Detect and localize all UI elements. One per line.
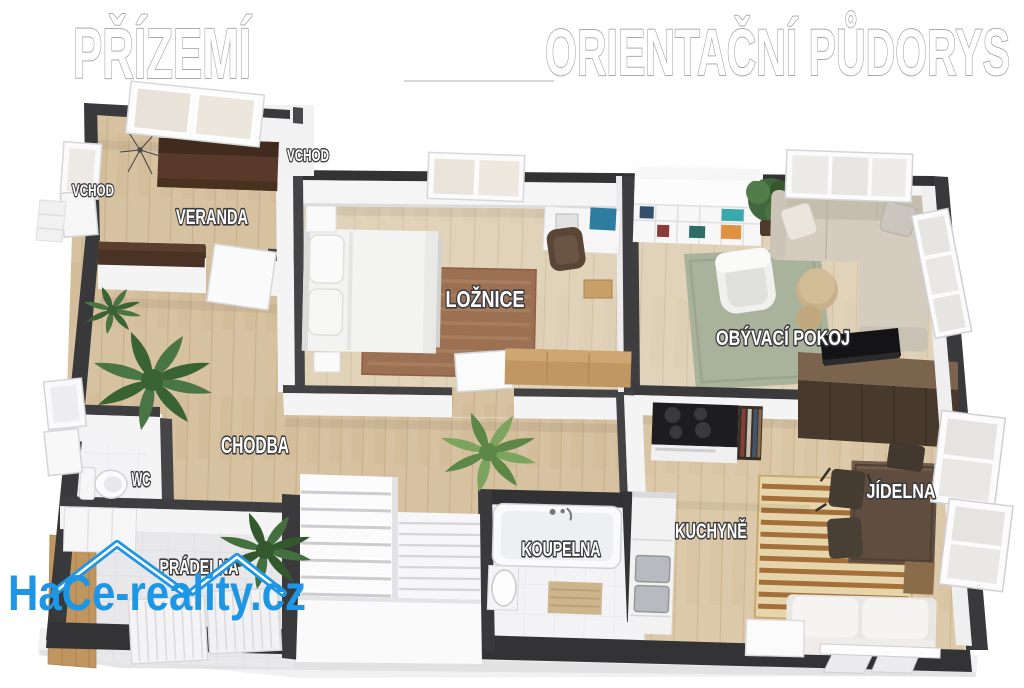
svg-text:PŘÍZEMÍ: PŘÍZEMÍ — [73, 14, 252, 94]
svg-text:ORIENTAČNÍ PŮDORYS: ORIENTAČNÍ PŮDORYS — [545, 10, 1010, 89]
svg-text:VERANDA: VERANDA — [176, 206, 248, 229]
svg-text:OBÝVACÍ POKOJ: OBÝVACÍ POKOJ — [716, 326, 850, 350]
svg-text:VCHOD: VCHOD — [287, 146, 329, 165]
svg-text:KUCHYNĚ: KUCHYNĚ — [675, 519, 747, 543]
svg-text:WC: WC — [132, 470, 151, 491]
svg-text:VCHOD: VCHOD — [72, 181, 114, 200]
svg-text:KOUPELNA: KOUPELNA — [522, 539, 601, 561]
svg-text:CHODBA: CHODBA — [221, 432, 289, 458]
svg-text:LOŽNICE: LOŽNICE — [446, 285, 525, 312]
svg-text:HaCe-reality.cz: HaCe-reality.cz — [8, 565, 306, 621]
svg-text:JÍDELNA: JÍDELNA — [867, 480, 936, 503]
